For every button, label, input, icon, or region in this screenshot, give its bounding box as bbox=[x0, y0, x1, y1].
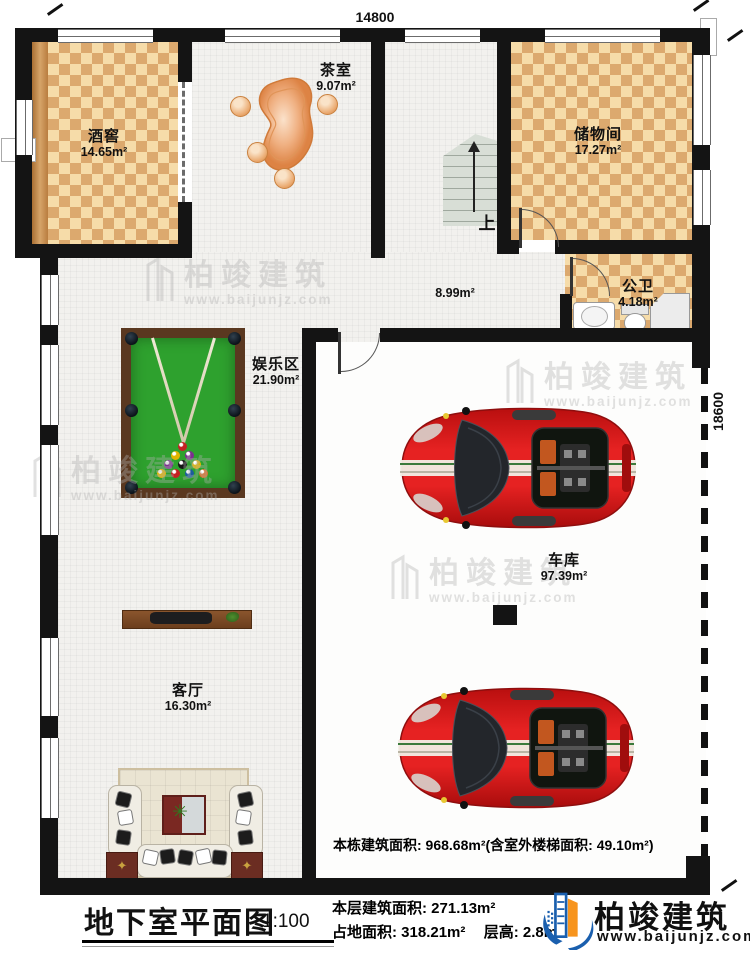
wall-storage-bottom-stub bbox=[497, 240, 519, 254]
billiard-ball bbox=[178, 442, 187, 451]
tea-stool bbox=[317, 94, 338, 115]
storage-door-leaf bbox=[519, 208, 522, 248]
brand-logo-icon bbox=[540, 886, 594, 950]
window bbox=[41, 638, 59, 716]
tv-set bbox=[150, 612, 212, 624]
stairs-up-label: 上 bbox=[474, 214, 500, 234]
table-pocket bbox=[228, 404, 241, 417]
billiard-ball bbox=[192, 460, 201, 469]
footprint-value: 占地面积: 318.21m² bbox=[332, 924, 465, 941]
room-label-wine: 酒窖14.65m² bbox=[54, 128, 154, 160]
scale-label: 1:100 bbox=[262, 911, 310, 933]
window bbox=[41, 738, 59, 818]
pool-table bbox=[121, 328, 245, 498]
dimension-width: 14800 bbox=[340, 9, 410, 25]
sports-car bbox=[390, 682, 640, 814]
tea-stool bbox=[247, 142, 268, 163]
room-label-bath: 公卫4.18m² bbox=[600, 278, 676, 310]
window bbox=[225, 29, 340, 43]
table-plant: ✳ bbox=[172, 803, 188, 822]
dimension-tick bbox=[693, 0, 709, 11]
cue-stick bbox=[151, 338, 185, 447]
table-pocket bbox=[228, 481, 241, 494]
window bbox=[58, 29, 153, 43]
brand-url: www.baijunjz.com bbox=[597, 928, 750, 945]
billiard-ball bbox=[185, 469, 194, 478]
room-label-storage: 储物间17.27m² bbox=[548, 126, 648, 158]
window bbox=[405, 29, 480, 43]
window bbox=[41, 345, 59, 425]
room-label-living: 客厅16.30m² bbox=[150, 682, 226, 714]
room-label-entertainment: 娱乐区21.90m² bbox=[244, 356, 308, 388]
billiard-ball bbox=[199, 469, 208, 478]
window bbox=[693, 170, 711, 225]
room-label-garage: 车库97.39m² bbox=[526, 552, 602, 584]
billiard-ball bbox=[178, 460, 187, 469]
sofa-left bbox=[108, 785, 142, 857]
wall-right-corner bbox=[686, 856, 710, 895]
stair-arrow-head bbox=[468, 141, 480, 152]
window bbox=[545, 29, 660, 43]
table-pocket bbox=[228, 332, 241, 345]
basement-floor-plan: 柏竣建筑 www.baijunjz.com 柏竣建筑 www.baijunjz.… bbox=[0, 0, 750, 955]
billiard-ball bbox=[171, 451, 180, 460]
billiard-ball bbox=[157, 469, 166, 478]
footprint-note: 占地面积: 318.21m² 层高: 2.8m bbox=[332, 921, 557, 942]
dashed-boundary bbox=[701, 368, 708, 856]
table-pocket bbox=[125, 481, 138, 494]
sports-car bbox=[392, 402, 642, 534]
window bbox=[41, 445, 59, 535]
title-underline-thin bbox=[82, 946, 334, 947]
building-area-note: 本栋建筑面积: 968.68m²(含室外楼梯面积: 49.10m²) bbox=[333, 835, 654, 855]
title-underline bbox=[82, 940, 334, 943]
sofa-right bbox=[229, 785, 263, 857]
wall-wine-divider bbox=[178, 28, 192, 82]
bathroom-door-leaf bbox=[570, 257, 573, 296]
wall-garage-left bbox=[302, 328, 316, 878]
corner-pad: ✦ bbox=[231, 852, 263, 880]
tea-stool bbox=[230, 96, 251, 117]
dimension-height: 18600 bbox=[710, 392, 726, 431]
billiard-ball bbox=[171, 469, 180, 478]
table-pocket bbox=[125, 332, 138, 345]
garage-door-leaf bbox=[338, 332, 341, 374]
billiard-ball bbox=[164, 460, 173, 469]
stair-direction-arrow bbox=[473, 150, 475, 212]
garage-column bbox=[493, 605, 517, 625]
window bbox=[693, 55, 711, 145]
window bbox=[41, 275, 59, 325]
hall-area-label: 8.99m² bbox=[420, 286, 490, 300]
tea-stool bbox=[274, 168, 295, 189]
corner-pad: ✦ bbox=[106, 852, 138, 880]
table-pocket bbox=[125, 404, 138, 417]
wine-sliding-door bbox=[182, 82, 185, 202]
dimension-tick bbox=[727, 29, 743, 41]
room-label-tea: 茶室9.07m² bbox=[300, 62, 372, 94]
dimension-tick bbox=[721, 879, 737, 891]
billiard-ball bbox=[185, 451, 194, 460]
wall-wine-divider bbox=[178, 202, 192, 258]
page-title: 地下室平面图 bbox=[84, 898, 276, 942]
cue-stick bbox=[181, 338, 215, 447]
wall-tea-divider bbox=[371, 28, 385, 258]
wall-garage-top bbox=[380, 328, 710, 342]
window bbox=[16, 100, 33, 155]
dimension-tick bbox=[47, 3, 63, 15]
wall-storage-bottom bbox=[555, 240, 692, 254]
floor-area-note: 本层建筑面积: 271.13m² bbox=[332, 897, 495, 918]
sofa-bottom bbox=[137, 844, 233, 878]
